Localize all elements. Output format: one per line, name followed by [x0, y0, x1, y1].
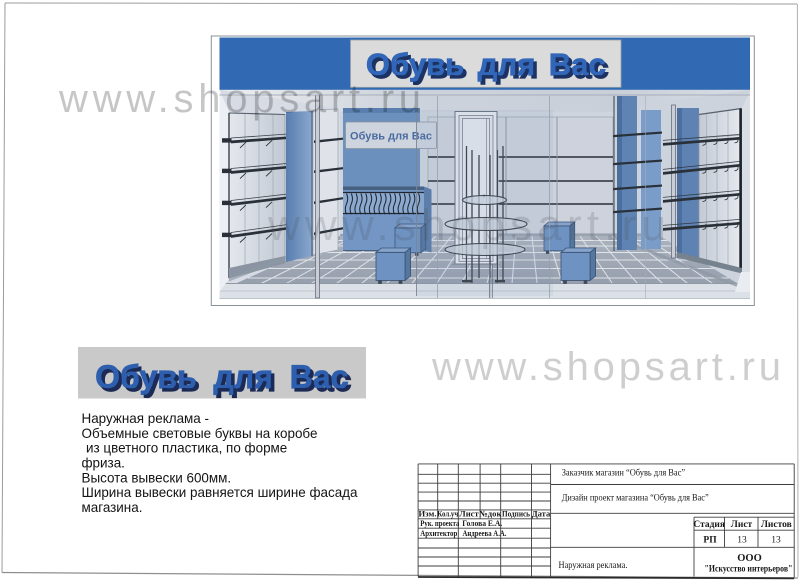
svg-text:Заказчик магазин “Обувь для Ва: Заказчик магазин “Обувь для Вас” [562, 468, 685, 479]
svg-text:Объемные световые буквы на кор: Объемные световые буквы на коробе [82, 426, 318, 441]
svg-text:Дизайн проект магазина “Обувь: Дизайн проект магазина “Обувь для Вас” [562, 493, 709, 504]
svg-text:Андреева А.А.: Андреева А.А. [463, 528, 507, 538]
svg-text:Обувь для Вас: Обувь для Вас [95, 359, 348, 395]
svg-text:магазина.: магазина. [82, 500, 143, 515]
svg-text:"Искусство интерьеров": "Искусство интерьеров" [705, 564, 793, 574]
svg-text:Ширина вывески равняется ширин: Ширина вывески равняется ширине фасада [82, 485, 359, 500]
svg-text:www.shopsart.ru: www.shopsart.ru [58, 77, 421, 121]
svg-text:Рук. проекта: Рук. проекта [420, 518, 460, 528]
svg-text:Стадия: Стадия [693, 520, 725, 530]
svg-text:13: 13 [771, 535, 781, 545]
svg-text:РП: РП [703, 535, 717, 545]
svg-text:www.shopsart.ru: www.shopsart.ru [267, 201, 666, 250]
svg-text:Дата: Дата [532, 508, 551, 518]
svg-text:Высота вывески 600мм.: Высота вывески 600мм. [82, 470, 232, 485]
svg-text:Наружная реклама -: Наружная реклама - [82, 411, 209, 426]
svg-text:ООО: ООО [737, 553, 762, 564]
svg-text:из цветного пластика, по форме: из цветного пластика, по форме [86, 441, 287, 456]
svg-text:Голова Е.А.: Голова Е.А. [462, 518, 502, 528]
svg-text:Подпись: Подпись [502, 508, 530, 518]
svg-text:13: 13 [737, 535, 747, 545]
svg-text:Лист: Лист [731, 520, 753, 530]
svg-text:Листов: Листов [761, 520, 792, 530]
svg-text:Наружная реклама.: Наружная реклама. [559, 560, 628, 570]
svg-text:Архитектор: Архитектор [420, 528, 457, 538]
svg-text:фриза.: фриза. [82, 456, 125, 471]
svg-text:www.shopsart.ru: www.shopsart.ru [431, 345, 781, 389]
